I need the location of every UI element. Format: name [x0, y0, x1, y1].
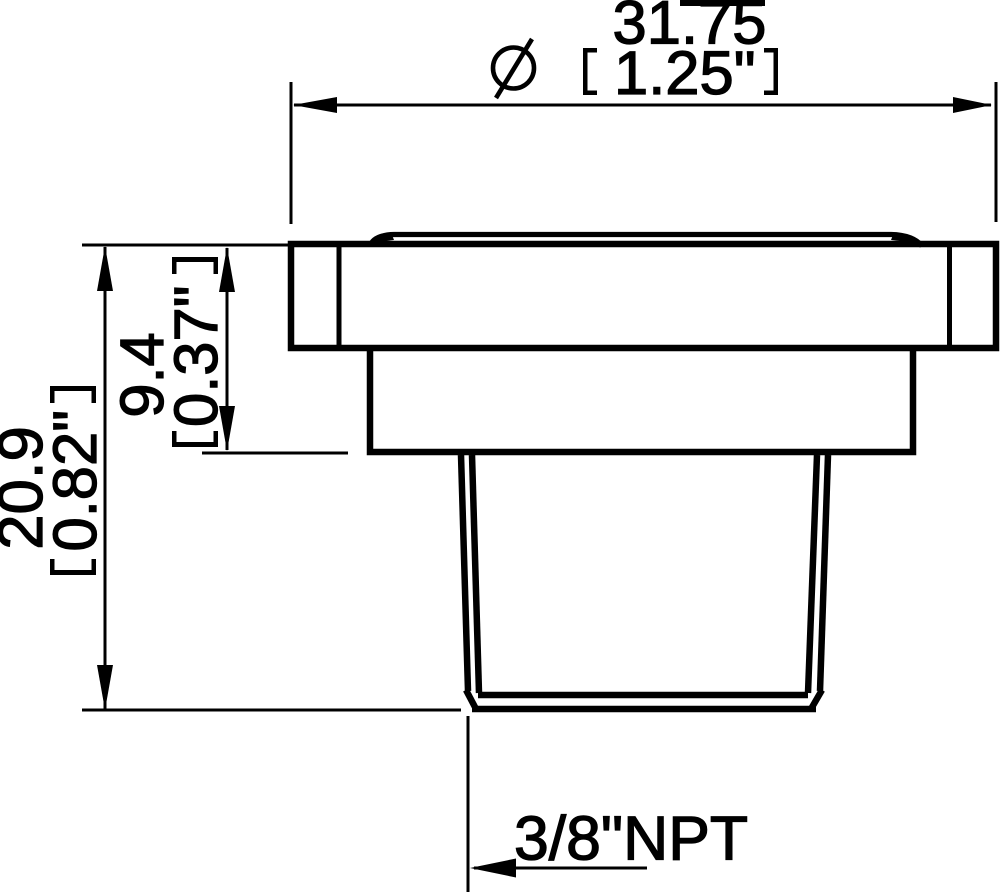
svg-text:3/8"NPT: 3/8"NPT: [514, 804, 748, 874]
svg-text:0.37": 0.37": [162, 285, 231, 427]
svg-text:1.25": 1.25": [614, 39, 756, 108]
svg-text:0.82": 0.82": [41, 410, 110, 552]
